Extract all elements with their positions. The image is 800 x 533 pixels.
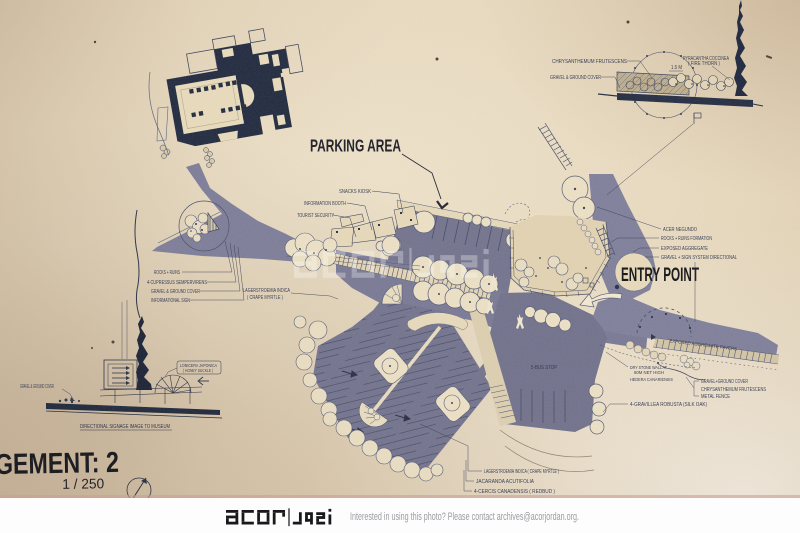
- svg-text:INFORMATION BOOTH: INFORMATION BOOTH: [304, 201, 346, 207]
- svg-text:LAGERSTROEMIA INDICA: LAGERSTROEMIA INDICA: [243, 288, 291, 294]
- svg-text:4-CERCIS CANADENSIS ( REDBUD: 4-CERCIS CANADENSIS ( REDBUD ): [474, 489, 555, 495]
- svg-text:TOURIST SECURITY: TOURIST SECURITY: [297, 213, 334, 219]
- svg-text:HEDERA CANARIENSIS: HEDERA CANARIENSIS: [630, 377, 673, 383]
- svg-text:CHRYSANTHEMUM FRUTESCENS: CHRYSANTHEMUM FRUTESCENS: [552, 59, 628, 65]
- svg-text:GRAVEL & GROUND COVER: GRAVEL & GROUND COVER: [151, 289, 200, 295]
- svg-text:ACER NEGUNDO: ACER NEGUNDO: [663, 227, 697, 233]
- svg-text:1.5 M: 1.5 M: [671, 65, 682, 71]
- svg-text:JACARANDA ACUTIFOLIA: JACARANDA ACUTIFOLIA: [476, 479, 535, 485]
- svg-text:4-GRAVILLEA ROBUSTA (SILK O: 4-GRAVILLEA ROBUSTA (SILK OAK): [630, 402, 707, 408]
- svg-text:DIRECTIONAL SIGNAGE IMAGE T: DIRECTIONAL SIGNAGE IMAGE TO MUSEUM: [80, 424, 170, 430]
- svg-text:Interested in using this photo: Interested in using this photo? Please c…: [350, 511, 579, 523]
- svg-text:GRAVEL & GROUND COVER: GRAVEL & GROUND COVER: [20, 384, 54, 390]
- svg-text:ENTRY POINT: ENTRY POINT: [621, 264, 699, 286]
- svg-text:INFORMATIONAL SIGN: INFORMATIONAL SIGN: [151, 298, 190, 304]
- svg-text:GRAVEL+GROUND COVER: GRAVEL+GROUND COVER: [701, 379, 748, 385]
- svg-text:60M NET HIGH: 60M NET HIGH: [634, 370, 664, 376]
- svg-text:ROCKS + RUINS FORMATION: ROCKS + RUINS FORMATION: [661, 236, 712, 242]
- svg-text:CHRYSANTHEMUM FRUTESCENS: CHRYSANTHEMUM FRUTESCENS: [701, 387, 767, 393]
- svg-text:( CRAPE MYRTLE ): ( CRAPE MYRTLE ): [247, 295, 283, 301]
- svg-text:( FIRE THORN ): ( FIRE THORN ): [688, 61, 720, 67]
- svg-text:ROCKS + RUINS: ROCKS + RUINS: [154, 270, 180, 276]
- svg-text:METAL FENCE: METAL FENCE: [701, 394, 731, 400]
- svg-text:1 / 250: 1 / 250: [62, 475, 104, 492]
- svg-text:EXPOSED AGGREGATE: EXPOSED AGGREGATE: [661, 246, 709, 252]
- svg-text:( HONEY SUCKLE ): ( HONEY SUCKLE ): [183, 368, 213, 374]
- svg-text:LAGERSTROEMIA INDICA ( CRAP: LAGERSTROEMIA INDICA ( CRAPE MYRTLE ): [484, 469, 559, 475]
- svg-text:4-CUPRESSUS SEMPERVIRENS: 4-CUPRESSUS SEMPERVIRENS: [147, 280, 208, 286]
- svg-text:SNACKS KIOSK: SNACKS KIOSK: [339, 189, 372, 195]
- svg-text:GRAVEL & GROUND COVER: GRAVEL & GROUND COVER: [550, 75, 601, 81]
- svg-text:PARKING AREA: PARKING AREA: [310, 136, 401, 156]
- svg-text:GRAVEL + SIGN SYSTEM DIRECTI: GRAVEL + SIGN SYSTEM DIRECTIONAL: [661, 255, 737, 261]
- svg-text:5-BUS STOP: 5-BUS STOP: [531, 365, 558, 371]
